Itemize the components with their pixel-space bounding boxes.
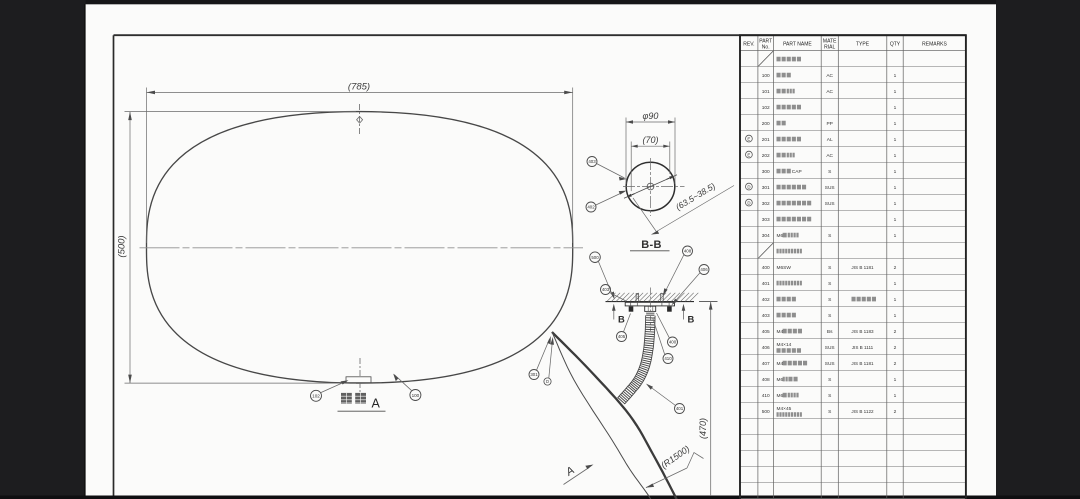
svg-text:S: S	[828, 281, 831, 287]
svg-text:1: 1	[894, 217, 897, 223]
svg-text:AC: AC	[826, 153, 833, 159]
svg-text:(785): (785)	[348, 82, 370, 93]
svg-text:QTY: QTY	[890, 41, 901, 47]
svg-text:1: 1	[894, 201, 897, 207]
svg-text:RIAL: RIAL	[824, 44, 835, 50]
svg-text:1: 1	[894, 137, 897, 143]
svg-text:408: 408	[684, 249, 692, 254]
svg-text:1: 1	[894, 313, 897, 319]
svg-text:PART NAME: PART NAME	[783, 41, 812, 47]
svg-text:201: 201	[762, 137, 770, 143]
svg-text:S: S	[828, 409, 831, 415]
svg-text:M6: M6	[777, 393, 784, 399]
svg-text:410: 410	[664, 356, 672, 361]
svg-text:TYPE: TYPE	[856, 41, 870, 47]
svg-text:102: 102	[762, 105, 770, 111]
svg-text:(500): (500)	[116, 235, 127, 257]
svg-text:400: 400	[669, 340, 677, 345]
svg-text:AC: AC	[826, 73, 833, 79]
svg-text:CAP: CAP	[792, 169, 802, 175]
svg-text:M6: M6	[777, 233, 784, 239]
svg-text:JIS B 1111: JIS B 1111	[852, 345, 874, 350]
svg-text:B-B: B-B	[641, 239, 661, 251]
svg-text:410: 410	[762, 393, 770, 399]
svg-text:1: 1	[894, 393, 897, 399]
svg-text:M4×14: M4×14	[777, 342, 792, 348]
svg-text:SUS: SUS	[825, 201, 835, 207]
svg-text:JIS B 1183: JIS B 1183	[851, 329, 874, 334]
svg-text:S: S	[828, 377, 831, 383]
svg-text:401: 401	[762, 281, 770, 287]
svg-text:2: 2	[894, 329, 897, 335]
svg-text:REV.: REV.	[743, 41, 754, 47]
svg-text:405: 405	[618, 334, 626, 339]
svg-text:1: 1	[894, 73, 897, 79]
svg-text:D: D	[747, 184, 750, 189]
svg-text:JIS B 1122: JIS B 1122	[851, 409, 874, 414]
svg-text:SUS: SUS	[825, 185, 835, 191]
svg-text:1: 1	[894, 121, 897, 127]
svg-text:101: 101	[762, 89, 770, 95]
svg-text:406: 406	[700, 267, 708, 272]
svg-text:100: 100	[412, 393, 420, 398]
svg-text:S: S	[828, 233, 831, 239]
svg-text:JIS B 1181: JIS B 1181	[851, 265, 874, 270]
svg-text:200: 200	[762, 121, 770, 127]
svg-text:403: 403	[588, 159, 596, 164]
svg-text:406: 406	[762, 345, 770, 351]
svg-text:M6: M6	[777, 377, 784, 383]
svg-text:403: 403	[762, 313, 770, 319]
svg-text:300: 300	[762, 169, 770, 175]
svg-text:(470): (470)	[698, 418, 708, 439]
svg-text:(70): (70)	[642, 135, 658, 145]
svg-text:402: 402	[762, 297, 770, 303]
svg-text:1: 1	[894, 233, 897, 239]
svg-text:S: S	[828, 169, 831, 175]
svg-text:2: 2	[894, 265, 897, 271]
svg-text:M4×45: M4×45	[777, 406, 792, 412]
svg-text:M4: M4	[777, 329, 784, 335]
svg-text:A: A	[372, 397, 381, 411]
svg-text:JIS B 1181: JIS B 1181	[851, 361, 874, 366]
svg-text:303: 303	[762, 217, 770, 223]
svg-text:AL: AL	[827, 137, 833, 143]
svg-text:M6SW: M6SW	[777, 265, 792, 271]
svg-text:403: 403	[602, 287, 610, 292]
svg-text:402: 402	[587, 205, 595, 210]
svg-text:2: 2	[894, 345, 897, 351]
svg-text:E: E	[747, 152, 750, 157]
svg-text:407: 407	[762, 361, 770, 367]
svg-text:301: 301	[762, 185, 770, 191]
svg-text:No.: No.	[762, 44, 770, 50]
svg-text:S: S	[828, 393, 831, 399]
svg-text:E: E	[747, 136, 750, 141]
svg-text:401: 401	[676, 406, 684, 411]
svg-text:102: 102	[312, 394, 320, 399]
svg-text:M4: M4	[777, 361, 784, 367]
svg-text:1: 1	[894, 377, 897, 383]
svg-text:SUS: SUS	[825, 361, 835, 367]
svg-text:1: 1	[894, 105, 897, 111]
svg-text:2: 2	[894, 409, 897, 415]
svg-text:D: D	[747, 200, 750, 205]
svg-text:1: 1	[894, 297, 897, 303]
svg-text:REMARKS: REMARKS	[922, 41, 947, 47]
svg-text:B: B	[618, 314, 625, 325]
svg-text:S: S	[828, 313, 831, 319]
svg-text:302: 302	[762, 201, 770, 207]
svg-text:1: 1	[894, 281, 897, 287]
svg-text:500: 500	[762, 409, 770, 415]
svg-text:1: 1	[894, 153, 897, 159]
svg-text:500: 500	[591, 255, 599, 260]
svg-text:AC: AC	[826, 89, 833, 95]
svg-text:1: 1	[894, 89, 897, 95]
svg-text:S: S	[828, 265, 831, 271]
svg-text:408: 408	[762, 377, 770, 383]
svg-text:SUS: SUS	[825, 345, 835, 351]
svg-text:S: S	[828, 297, 831, 303]
svg-text:1: 1	[894, 169, 897, 175]
svg-text:D: D	[546, 379, 549, 384]
svg-text:φ90: φ90	[643, 111, 659, 121]
svg-text:405: 405	[762, 329, 770, 335]
svg-text:304: 304	[762, 233, 770, 239]
svg-text:PP: PP	[826, 121, 832, 127]
svg-text:202: 202	[762, 153, 770, 159]
svg-text:B: B	[688, 314, 695, 325]
svg-text:100: 100	[762, 73, 770, 79]
svg-text:1: 1	[894, 185, 897, 191]
svg-text:400: 400	[762, 265, 770, 271]
svg-text:Bs: Bs	[827, 329, 833, 335]
svg-text:2: 2	[894, 361, 897, 367]
svg-text:301: 301	[530, 372, 538, 377]
